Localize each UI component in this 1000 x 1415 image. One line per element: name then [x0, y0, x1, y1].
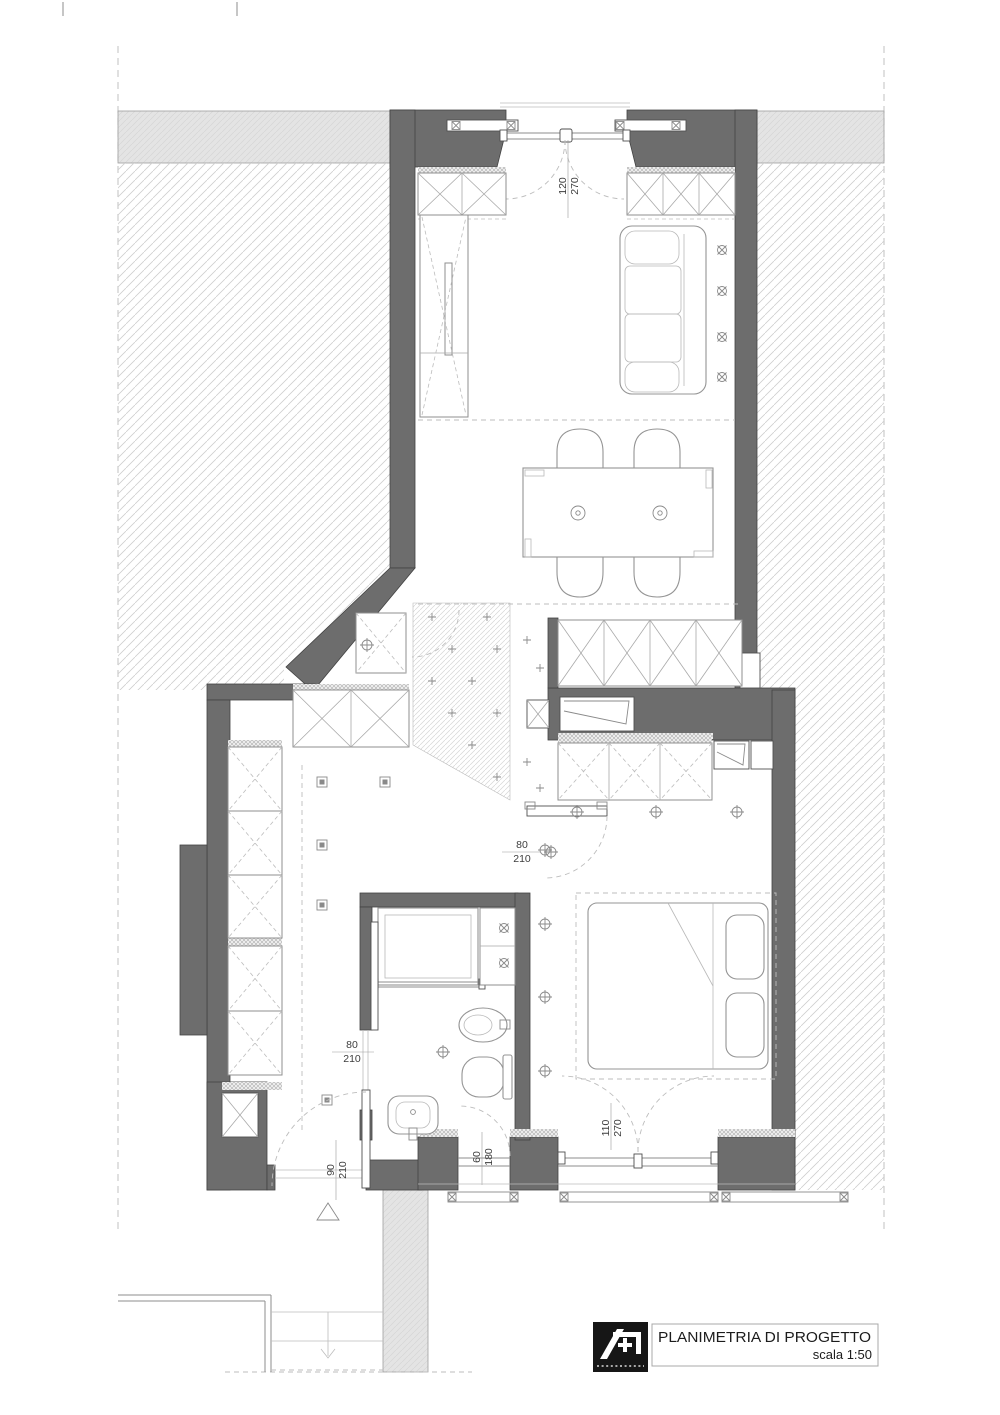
bedroom-door: 80 210 — [502, 802, 607, 878]
dim-bathroom-window-height: 180 — [483, 1148, 495, 1166]
tv-unit — [420, 215, 468, 417]
bidet — [459, 1008, 510, 1042]
window-swing-left — [562, 1076, 638, 1152]
washbasin — [388, 1096, 438, 1140]
wardrobe-bedroom — [558, 743, 712, 800]
radiator-fixing-icon — [718, 246, 727, 255]
dim-bedroom-door-height: 210 — [513, 853, 531, 865]
pillow — [726, 915, 764, 979]
drawing-title: PLANIMETRIA DI PROGETTO — [658, 1329, 871, 1346]
cabinet-kitchen-upper — [293, 690, 409, 747]
wall-living-left — [390, 110, 415, 568]
title-block: PLANIMETRIA DI PROGETTO scala 1:50 — [593, 1322, 878, 1372]
toilet-cistern — [503, 1055, 512, 1099]
dim-bedroom-door-width: 80 — [516, 839, 528, 851]
wall-pilaster — [180, 845, 207, 1035]
dim-balcony-door-width: 120 — [557, 177, 569, 195]
wall-bathroom-left-upper — [360, 907, 372, 1030]
chair — [557, 429, 603, 468]
double-bed — [576, 893, 776, 1079]
cabinet-kitchen-single — [356, 613, 406, 673]
door-swing — [545, 816, 607, 878]
floor-plan-page: 120 270 — [0, 0, 1000, 1415]
wall-niche-living — [740, 653, 760, 688]
window-mullion — [634, 1154, 642, 1168]
dim-entry-door-width: 90 — [325, 1164, 337, 1176]
stairwell-landing — [118, 1295, 383, 1372]
bathroom-window: 60 180 — [458, 1106, 510, 1185]
wardrobe-column-left — [228, 747, 282, 1075]
wall-living-right — [735, 110, 757, 690]
dim-bathroom-door-height: 210 — [343, 1053, 361, 1065]
wall-bathroom-right — [515, 893, 530, 1140]
bathroom-wall-cabinet — [480, 908, 515, 985]
dim-entry-door-height: 210 — [337, 1161, 349, 1179]
wall-bottom-d — [718, 1137, 795, 1190]
sliding-door-leaf — [527, 806, 607, 816]
adjacent-building-band-right — [757, 111, 884, 163]
door-swing — [272, 1092, 366, 1186]
shower — [372, 908, 485, 989]
niche-window-right — [714, 741, 773, 769]
entrance-triangle-icon — [317, 1203, 339, 1220]
wardrobe-top-left — [418, 173, 506, 219]
dining-table — [523, 468, 713, 557]
wall-bathroom-top — [360, 893, 518, 907]
dining-set — [523, 429, 713, 597]
niche-window-mid — [560, 697, 634, 731]
bedroom-french-window: 110 270 — [558, 1076, 718, 1168]
wardrobe-top-right — [627, 173, 735, 219]
tv-panel — [445, 263, 452, 355]
drawing-scale: scala 1:50 — [813, 1347, 872, 1362]
dim-bedroom-window-height: 270 — [612, 1119, 624, 1137]
spotlight-square-icon — [317, 900, 327, 910]
spotlight-icon — [544, 845, 558, 859]
window-swing-right — [638, 1076, 714, 1152]
radiator-fixing-icon — [718, 333, 727, 342]
bathroom: 80 210 — [332, 908, 515, 1140]
dim-bedroom-window-width: 110 — [600, 1119, 612, 1136]
spotlight-square-icon — [380, 777, 390, 787]
sliding-door-leaf — [371, 922, 378, 1030]
entry-door: 90 210 — [272, 1090, 370, 1200]
chair — [634, 429, 680, 468]
toilet — [462, 1055, 512, 1099]
wall-corridor — [548, 618, 558, 688]
dim-bathroom-window-width: 60 — [471, 1151, 483, 1163]
adjacent-building-band-left — [118, 111, 390, 163]
spotlight-square-icon — [317, 777, 327, 787]
spotlight-square-icon — [317, 840, 327, 850]
dim-balcony-door-height: 270 — [569, 177, 581, 195]
door-handle-icon — [560, 129, 572, 142]
floor-plan-svg: 120 270 — [0, 0, 1000, 1415]
door-leaf — [362, 1090, 370, 1188]
radiator-fixing-icon — [718, 373, 727, 382]
stairwell-wall-strip — [383, 1190, 428, 1372]
wall-bottom-a — [366, 1160, 422, 1190]
wall-bottom-c — [510, 1137, 558, 1190]
pillow — [726, 993, 764, 1057]
kitchen-tiled-floor — [413, 603, 510, 800]
wall-lower-right — [772, 690, 795, 1190]
light-shaft — [222, 1093, 258, 1137]
radiator-fixing-icon — [718, 287, 727, 296]
dim-bathroom-door-width: 80 — [346, 1039, 358, 1051]
sofa — [620, 226, 706, 394]
spotlight-icon — [436, 1045, 450, 1059]
cabinet-living-bottom — [558, 620, 742, 686]
wall-bottom-b — [418, 1137, 458, 1190]
bedroom: 80 210 — [502, 741, 776, 1079]
